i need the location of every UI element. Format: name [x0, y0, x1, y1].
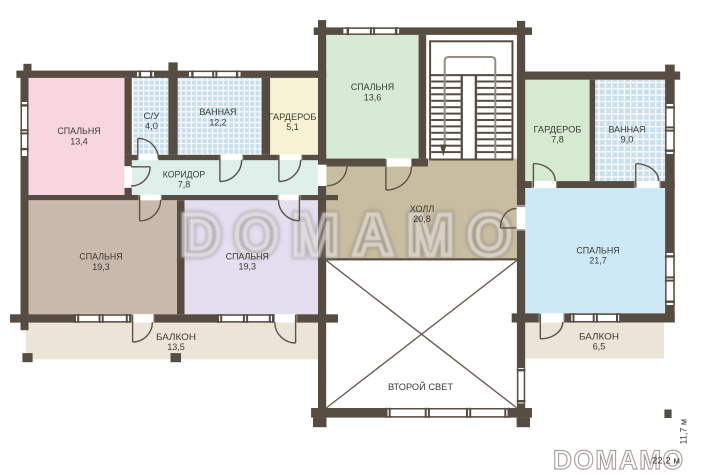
- svg-text:ВТОРОЙ СВЕТ: ВТОРОЙ СВЕТ: [388, 381, 453, 393]
- svg-text:21,7: 21,7: [589, 256, 607, 267]
- svg-text:9,0: 9,0: [621, 135, 634, 146]
- svg-text:19,3: 19,3: [239, 262, 257, 273]
- svg-text:6,5: 6,5: [593, 341, 606, 352]
- svg-text:7,8: 7,8: [551, 135, 564, 146]
- svg-text:20,8: 20,8: [413, 214, 431, 225]
- svg-text:7,8: 7,8: [178, 180, 191, 191]
- svg-text:5,1: 5,1: [286, 122, 299, 133]
- svg-text:11,7 м: 11,7 м: [679, 419, 689, 445]
- svg-text:19,3: 19,3: [92, 262, 110, 273]
- svg-text:13,5: 13,5: [167, 342, 185, 353]
- svg-text:22,2 м: 22,2 м: [652, 455, 680, 466]
- svg-text:12,2: 12,2: [210, 117, 227, 128]
- svg-text:13,4: 13,4: [70, 136, 88, 147]
- svg-text:4,0: 4,0: [145, 121, 158, 132]
- svg-text:13,6: 13,6: [364, 92, 382, 103]
